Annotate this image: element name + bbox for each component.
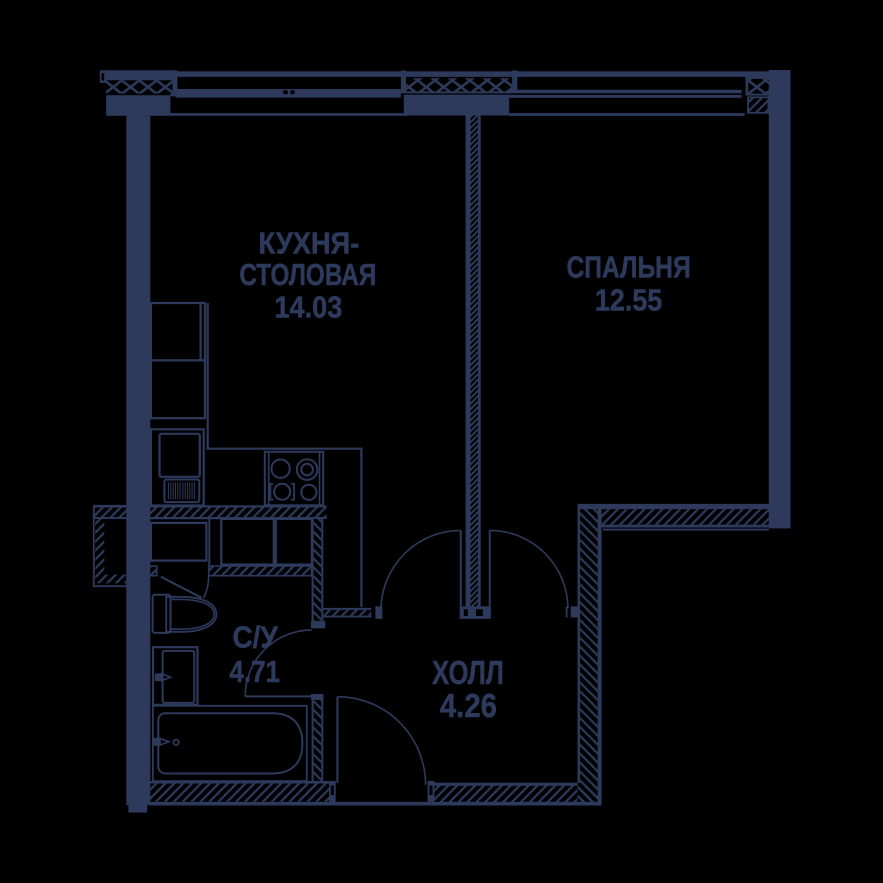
svg-text:4.71: 4.71 xyxy=(229,655,280,690)
svg-text:4.26: 4.26 xyxy=(440,687,497,724)
svg-text:СПАЛЬНЯ: СПАЛЬНЯ xyxy=(566,250,690,284)
svg-text:С/У: С/У xyxy=(232,620,278,655)
svg-text:12.55: 12.55 xyxy=(595,284,662,318)
svg-text:КУХНЯ-: КУХНЯ- xyxy=(259,227,360,261)
svg-text:СТОЛОВАЯ: СТОЛОВАЯ xyxy=(239,257,376,291)
svg-text:14.03: 14.03 xyxy=(274,291,342,325)
